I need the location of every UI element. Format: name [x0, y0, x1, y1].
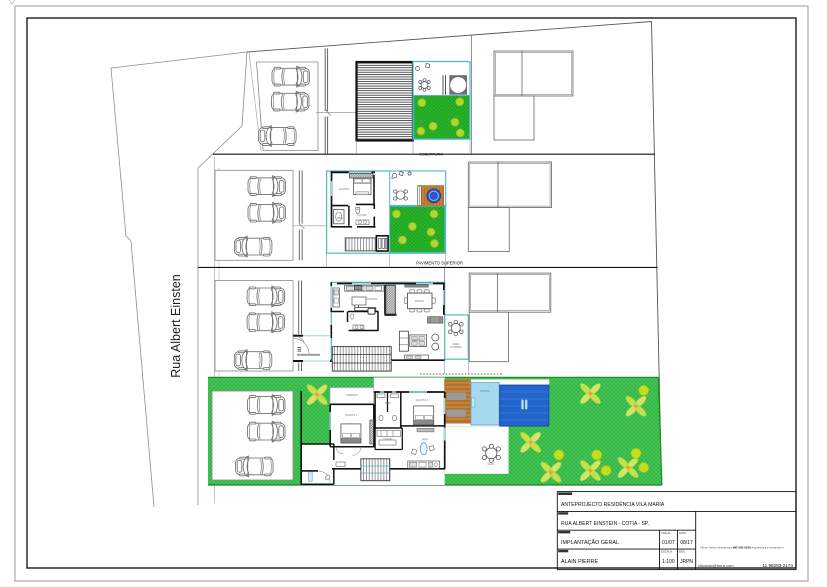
- svg-text:BWC: BWC: [385, 402, 391, 405]
- svg-text:11 98293-2174: 11 98293-2174: [762, 563, 793, 568]
- svg-text:ESCALA: ESCALA: [661, 550, 672, 554]
- svg-text:08/17: 08/17: [680, 540, 693, 546]
- svg-text:SALA: SALA: [422, 438, 429, 441]
- svg-text:QUARTO 2: QUARTO 2: [416, 399, 429, 402]
- svg-text:CLOSET: CLOSET: [383, 438, 393, 441]
- svg-text:RUA ALBERT EINSTEIN - COTIA -: RUA ALBERT EINSTEIN - COTIA - SP.: [561, 521, 649, 527]
- svg-text:ANTEPROJECTO RESIDÊNCIA VILA M: ANTEPROJECTO RESIDÊNCIA VILA MARIA: [561, 500, 665, 508]
- svg-text:1:100: 1:100: [662, 559, 675, 565]
- svg-text:TERRAÇO: TERRAÇO: [346, 394, 358, 397]
- svg-text:BWC: BWC: [337, 217, 343, 220]
- svg-text:JANTAR: JANTAR: [414, 300, 423, 303]
- svg-text:DECK: DECK: [488, 463, 495, 466]
- svg-text:01/07: 01/07: [662, 540, 675, 546]
- svg-text:JRPN: JRPN: [680, 559, 693, 565]
- svg-text:ALAIN PIERRE: ALAIN PIERRE: [561, 559, 599, 565]
- svg-text:PAVIMENTO SUPERIOR: PAVIMENTO SUPERIOR: [416, 261, 463, 266]
- svg-text:QUARTO 1: QUARTO 1: [345, 414, 358, 417]
- svg-text:DES.: DES.: [679, 550, 686, 554]
- svg-text:IMPLANTAÇÃO GERAL: IMPLANTAÇÃO GERAL: [561, 539, 619, 546]
- svg-text:DATA: DATA: [679, 531, 686, 535]
- svg-text:CLOSET: CLOSET: [357, 214, 367, 217]
- svg-text:COZINHA: COZINHA: [367, 298, 378, 301]
- svg-text:COBERTURA: COBERTURA: [419, 153, 443, 157]
- svg-text:PISCINA: PISCINA: [480, 390, 490, 393]
- svg-text:GOURMET: GOURMET: [450, 346, 463, 349]
- svg-text:FOLHA: FOLHA: [661, 531, 670, 535]
- svg-text:Vilson Abreu Arquitetura ME 00: Vilson Abreu Arquitetura ME 000 0029 Arq…: [700, 546, 784, 550]
- svg-text:Rua Albert Einsten: Rua Albert Einsten: [169, 274, 183, 378]
- svg-text:ESTAR: ESTAR: [412, 339, 420, 342]
- svg-text:vilsonab@terra.com: vilsonab@terra.com: [698, 563, 734, 568]
- svg-text:QUARTO: QUARTO: [339, 188, 349, 191]
